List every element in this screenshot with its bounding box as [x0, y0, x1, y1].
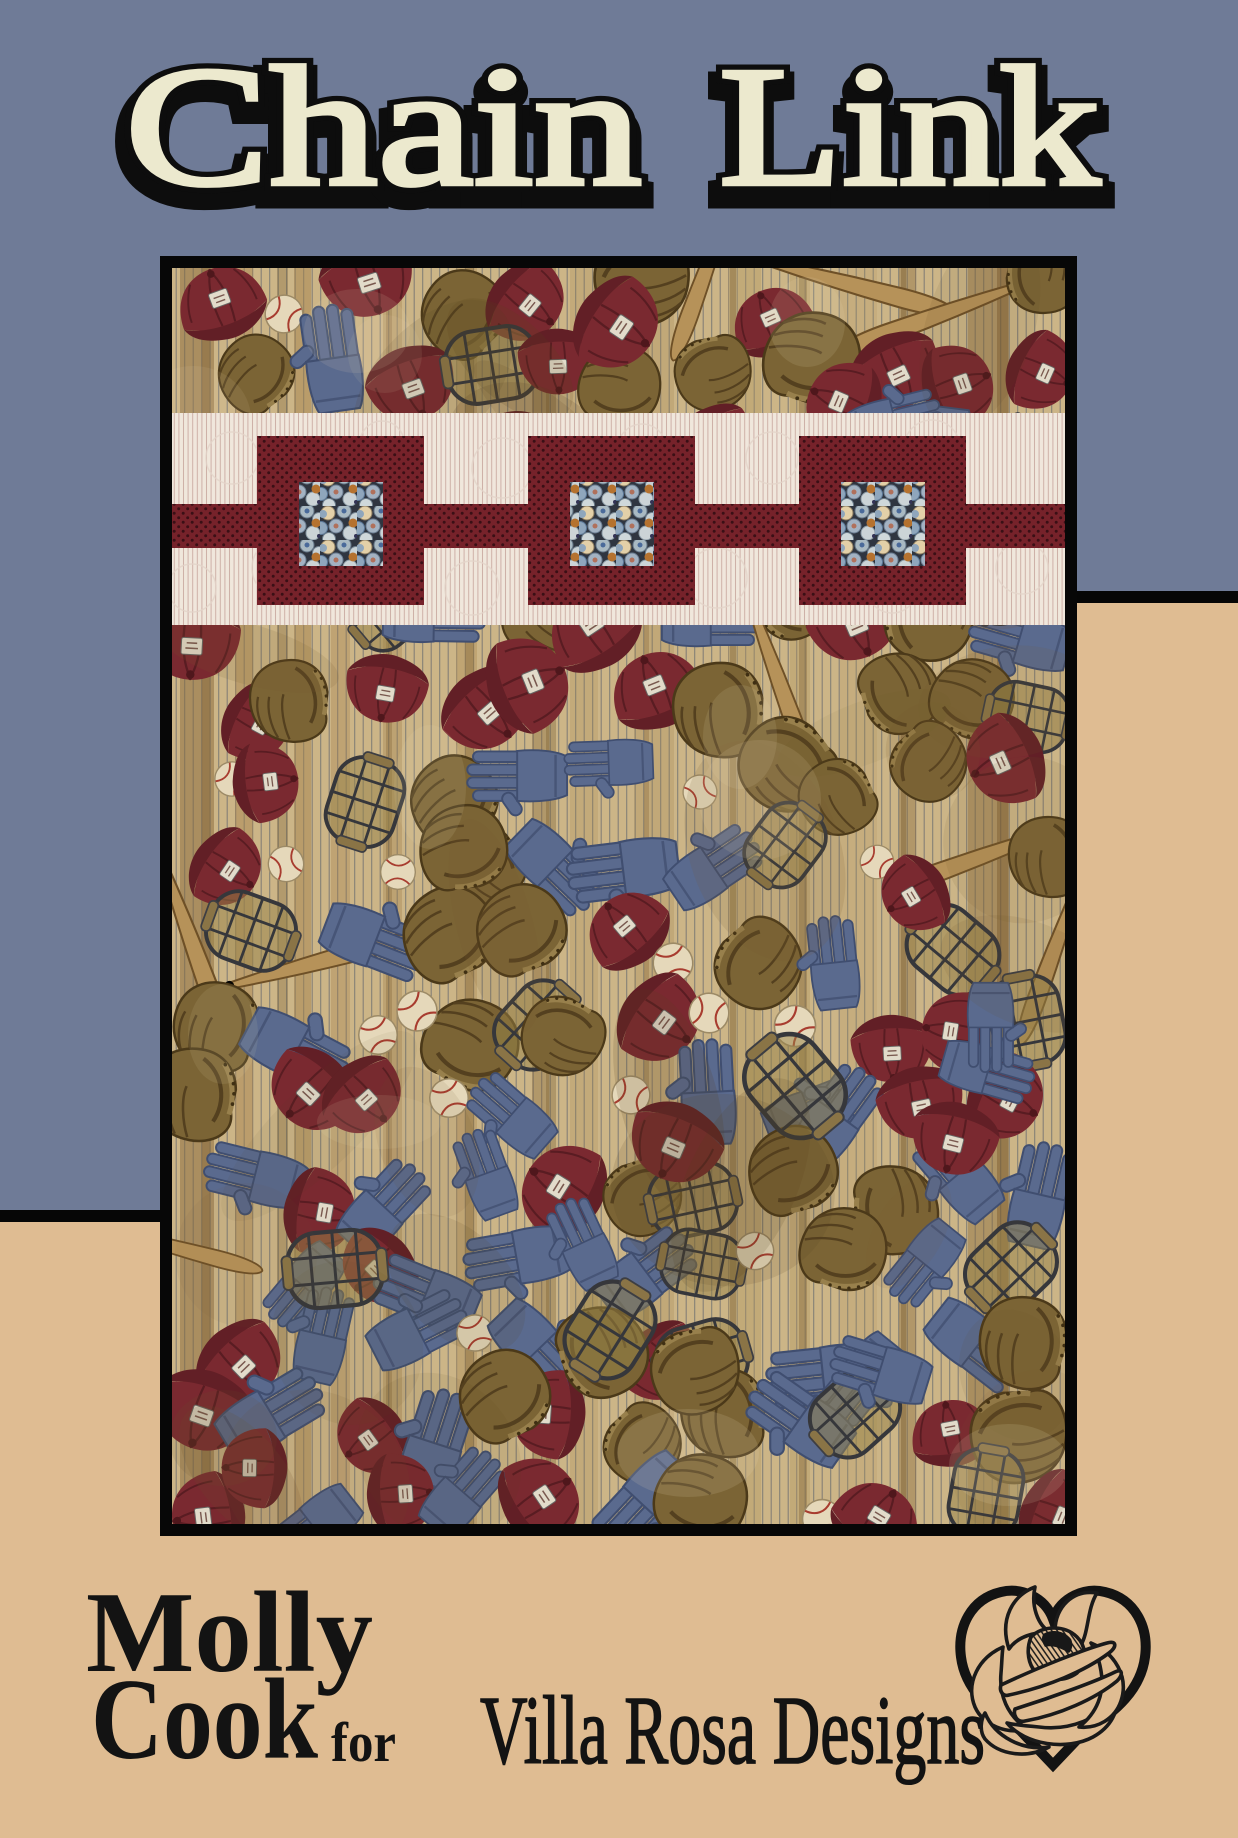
svg-text:for: for: [331, 1712, 396, 1774]
svg-text:Cook: Cook: [91, 1656, 318, 1784]
svg-text:Link: Link: [719, 32, 1101, 221]
svg-text:Villa Rosa Designs: Villa Rosa Designs: [480, 1677, 985, 1784]
svg-text:Chain: Chain: [125, 32, 642, 221]
